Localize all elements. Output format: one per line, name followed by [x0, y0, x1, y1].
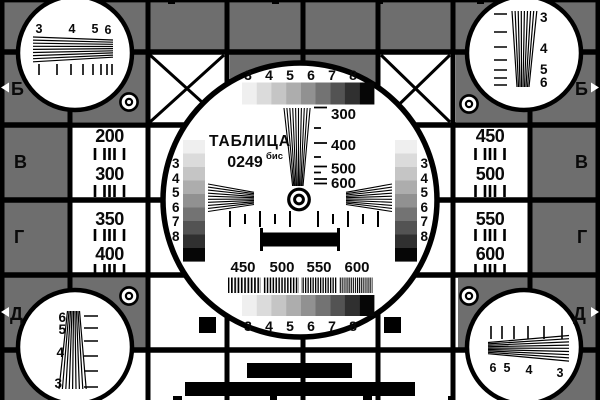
double-circle-icon	[460, 95, 477, 112]
wedge-digit: 5	[504, 361, 511, 375]
card-number: 0249	[227, 154, 263, 171]
cell-value: 200	[95, 126, 124, 146]
row-label-right-g: Г	[577, 227, 587, 247]
grayscale-step	[395, 248, 417, 262]
grayscale-step	[395, 167, 417, 181]
scale-digit: 4	[265, 318, 273, 334]
grayscale-step	[316, 295, 331, 316]
scale-digit: 6	[307, 67, 315, 83]
grayscale-step	[257, 295, 272, 316]
grayscale-column-right: 3 4 5 6 7 8	[395, 140, 429, 262]
grayscale-step	[183, 235, 205, 249]
column-digit: 8	[421, 229, 429, 244]
double-circle-icon	[460, 287, 477, 304]
grayscale-step	[271, 295, 286, 316]
column-digit: 7	[172, 214, 180, 229]
grayscale-step	[242, 295, 257, 316]
grayscale-step	[395, 221, 417, 235]
grayscale-step	[330, 295, 345, 316]
scale-digit: 7	[328, 318, 336, 334]
wedge-digit: 3	[36, 22, 43, 36]
column-digit: 8	[172, 229, 180, 244]
grayscale-step	[183, 221, 205, 235]
cell-value: 500	[476, 164, 505, 184]
double-circle-icon	[120, 287, 137, 304]
burst-label: 550	[306, 259, 331, 276]
wedge-digit: 4	[540, 41, 548, 56]
cell-value: 300	[95, 164, 124, 184]
column-digit: 7	[421, 214, 429, 229]
row-label-right-b: Б	[575, 79, 588, 99]
cell-value: 450	[476, 126, 505, 146]
cut-digit-mark	[363, 396, 372, 400]
cell-value: 550	[476, 209, 505, 229]
cell-value: 600	[476, 244, 505, 264]
black-square-right	[384, 317, 401, 333]
tv-test-card: Б В Г Д Б В Г Д 200 300 350 400 450 500 …	[0, 0, 600, 400]
cell-value: 350	[95, 209, 124, 229]
scale-digit: 8	[349, 318, 357, 334]
grayscale-step	[242, 83, 257, 105]
burst-label: 500	[269, 259, 294, 276]
burst-band-550	[301, 278, 337, 294]
grayscale-step	[183, 181, 205, 195]
wedge-digit: 6	[490, 361, 497, 375]
scale-digit: 6	[307, 318, 315, 334]
burst-band-450	[228, 278, 261, 294]
wedge-digit: 4	[526, 363, 533, 377]
column-digit: 6	[172, 200, 180, 215]
grayscale-step	[395, 208, 417, 222]
column-digit: 4	[421, 171, 429, 186]
grayscale-step	[395, 154, 417, 168]
grayscale-step	[395, 235, 417, 249]
cut-digit-mark	[173, 396, 182, 400]
cell-value: 400	[95, 244, 124, 264]
grayscale-step	[183, 167, 205, 181]
cut-digit-mark	[376, 0, 383, 4]
grayscale-step	[345, 83, 360, 105]
pulse-bar-long	[185, 382, 415, 396]
scale-digit: 3	[244, 67, 252, 83]
burst-band-600	[339, 278, 373, 294]
grayscale-step	[301, 295, 316, 316]
grayscale-step	[345, 295, 360, 316]
column-digit: 3	[172, 156, 180, 171]
scale-digit: 3	[244, 318, 252, 334]
row-label-left-g: Г	[14, 227, 24, 247]
wedge-digit: 6	[105, 23, 112, 37]
wedge-label: 600	[331, 175, 356, 192]
grayscale-step	[183, 194, 205, 208]
grayscale-step	[257, 83, 272, 105]
grayscale-step	[183, 154, 205, 168]
card-number-suffix: бис	[266, 151, 283, 162]
grayscale-bar-bottom	[242, 295, 374, 316]
grayscale-step	[395, 194, 417, 208]
scale-digit: 4	[265, 67, 273, 83]
wedge-digit: 5	[92, 22, 99, 36]
scale-digit: 5	[286, 318, 294, 334]
reference-bar	[263, 233, 337, 247]
wedge-label: 400	[331, 137, 356, 154]
black-square-left	[199, 317, 216, 333]
scale-digit: 7	[328, 67, 336, 83]
grayscale-step	[316, 83, 331, 105]
wedge-digit: 6	[540, 75, 548, 90]
wedge-digit: 4	[69, 22, 76, 36]
test-card-canvas: Б В Г Д Б В Г Д 200 300 350 400 450 500 …	[0, 0, 600, 400]
grayscale-step	[360, 295, 375, 316]
scale-digit: 8	[349, 67, 357, 83]
grayscale-step	[301, 83, 316, 105]
column-digit: 6	[421, 200, 429, 215]
grayscale-bar-top	[242, 83, 374, 105]
grayscale-step	[286, 295, 301, 316]
bullseye-icon	[289, 189, 310, 210]
burst-label: 600	[344, 259, 369, 276]
row-label-right-d: Д	[573, 304, 586, 324]
wedge-digit: 3	[540, 10, 548, 25]
grayscale-step	[286, 83, 301, 105]
grayscale-column-left: 3 4 5 6 7 8	[172, 140, 205, 262]
card-title-text: ТАБЛИЦА	[209, 133, 291, 150]
row-label-left-d: Д	[10, 304, 23, 324]
scale-digit: 5	[286, 67, 294, 83]
cut-digit-mark	[270, 396, 277, 400]
wedge-label: 300	[331, 106, 356, 123]
grayscale-step	[360, 83, 375, 105]
column-digit: 4	[172, 171, 180, 186]
grayscale-step	[183, 140, 205, 154]
grayscale-step	[330, 83, 345, 105]
row-label-left-v: В	[14, 152, 27, 172]
column-digit: 5	[421, 185, 429, 200]
grayscale-step	[271, 83, 286, 105]
grayscale-step	[183, 248, 205, 262]
column-digit: 3	[421, 156, 429, 171]
pulse-bar-short	[247, 363, 352, 378]
grayscale-step	[395, 140, 417, 154]
cut-digit-mark	[477, 0, 484, 4]
grayscale-step	[395, 181, 417, 195]
burst-band-500	[263, 278, 299, 294]
cut-digit-mark	[168, 0, 175, 4]
row-label-left-b: Б	[11, 79, 24, 99]
burst-label: 450	[230, 259, 255, 276]
grayscale-step	[183, 208, 205, 222]
double-circle-icon	[120, 93, 137, 110]
cut-digit-mark	[448, 396, 455, 400]
wedge-digit: 3	[557, 366, 564, 380]
column-digit: 5	[172, 185, 180, 200]
cut-digit-mark	[272, 0, 279, 4]
row-label-right-v: В	[575, 152, 588, 172]
